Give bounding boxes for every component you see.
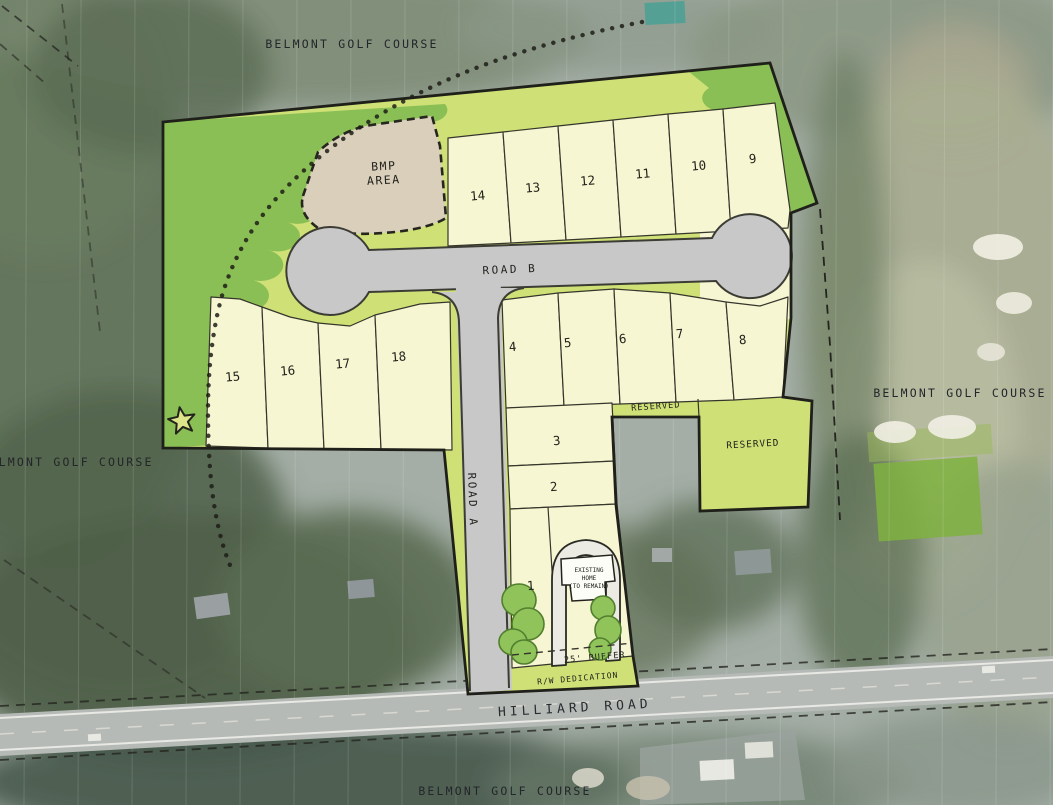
bmp-area-label-line2: AREA — [367, 172, 401, 188]
lot-3-parcel — [506, 403, 615, 466]
golf-course-label-bottom: BELMONT GOLF COURSE — [418, 784, 591, 798]
lot-6-parcel — [614, 289, 676, 404]
golf-course-label-right: BELMONT GOLF COURSE — [873, 386, 1046, 400]
vehicle — [88, 734, 101, 742]
lot-9-number: 9 — [748, 151, 757, 167]
existing-home-label-line2: HOME — [582, 575, 597, 582]
road-b-label: ROAD B — [482, 262, 537, 277]
lot-18-parcel — [375, 302, 452, 450]
site-plan-page: BELMONT GOLF COURSE BELMONT GOLF COURSE … — [0, 0, 1053, 805]
lot-8-parcel — [726, 297, 788, 400]
lot-10-number: 10 — [690, 157, 706, 173]
lot-6-number: 6 — [618, 331, 627, 347]
lot-8-number: 8 — [738, 332, 747, 348]
lot-2-number: 2 — [549, 479, 558, 494]
lot-4-number: 4 — [508, 339, 517, 355]
vehicle — [982, 666, 995, 674]
site-plan-map: BELMONT GOLF COURSE BELMONT GOLF COURSE … — [0, 0, 1053, 805]
lot-17-parcel — [318, 315, 381, 449]
lot-2-parcel — [508, 461, 617, 509]
bmp-area-label-line1: BMP — [371, 158, 397, 173]
lot-7-number: 7 — [675, 326, 684, 342]
lot-17-number: 17 — [334, 355, 350, 371]
lot-18-number: 18 — [390, 348, 406, 364]
road-a-label: ROAD A — [465, 472, 480, 527]
lot-14-number: 14 — [469, 187, 485, 203]
lot-7-parcel — [670, 293, 734, 402]
lot-11-number: 11 — [634, 165, 650, 181]
lot-16-number: 16 — [279, 362, 295, 378]
existing-home-label-line3: (TO REMAIN) — [569, 583, 609, 590]
lot-3-number: 3 — [552, 433, 561, 448]
lot-13-number: 13 — [524, 179, 540, 195]
tree — [511, 640, 537, 664]
lot-1-number: 1 — [526, 578, 535, 593]
lot-12-number: 12 — [579, 172, 595, 188]
golf-course-label-left: BELMONT GOLF COURSE — [0, 455, 154, 469]
lot-16-parcel — [262, 307, 324, 449]
golf-course-label-top: BELMONT GOLF COURSE — [265, 37, 438, 51]
existing-home-label-line1: EXISTING — [575, 567, 604, 574]
lot-15-number: 15 — [224, 368, 240, 384]
lot-5-number: 5 — [563, 335, 572, 351]
